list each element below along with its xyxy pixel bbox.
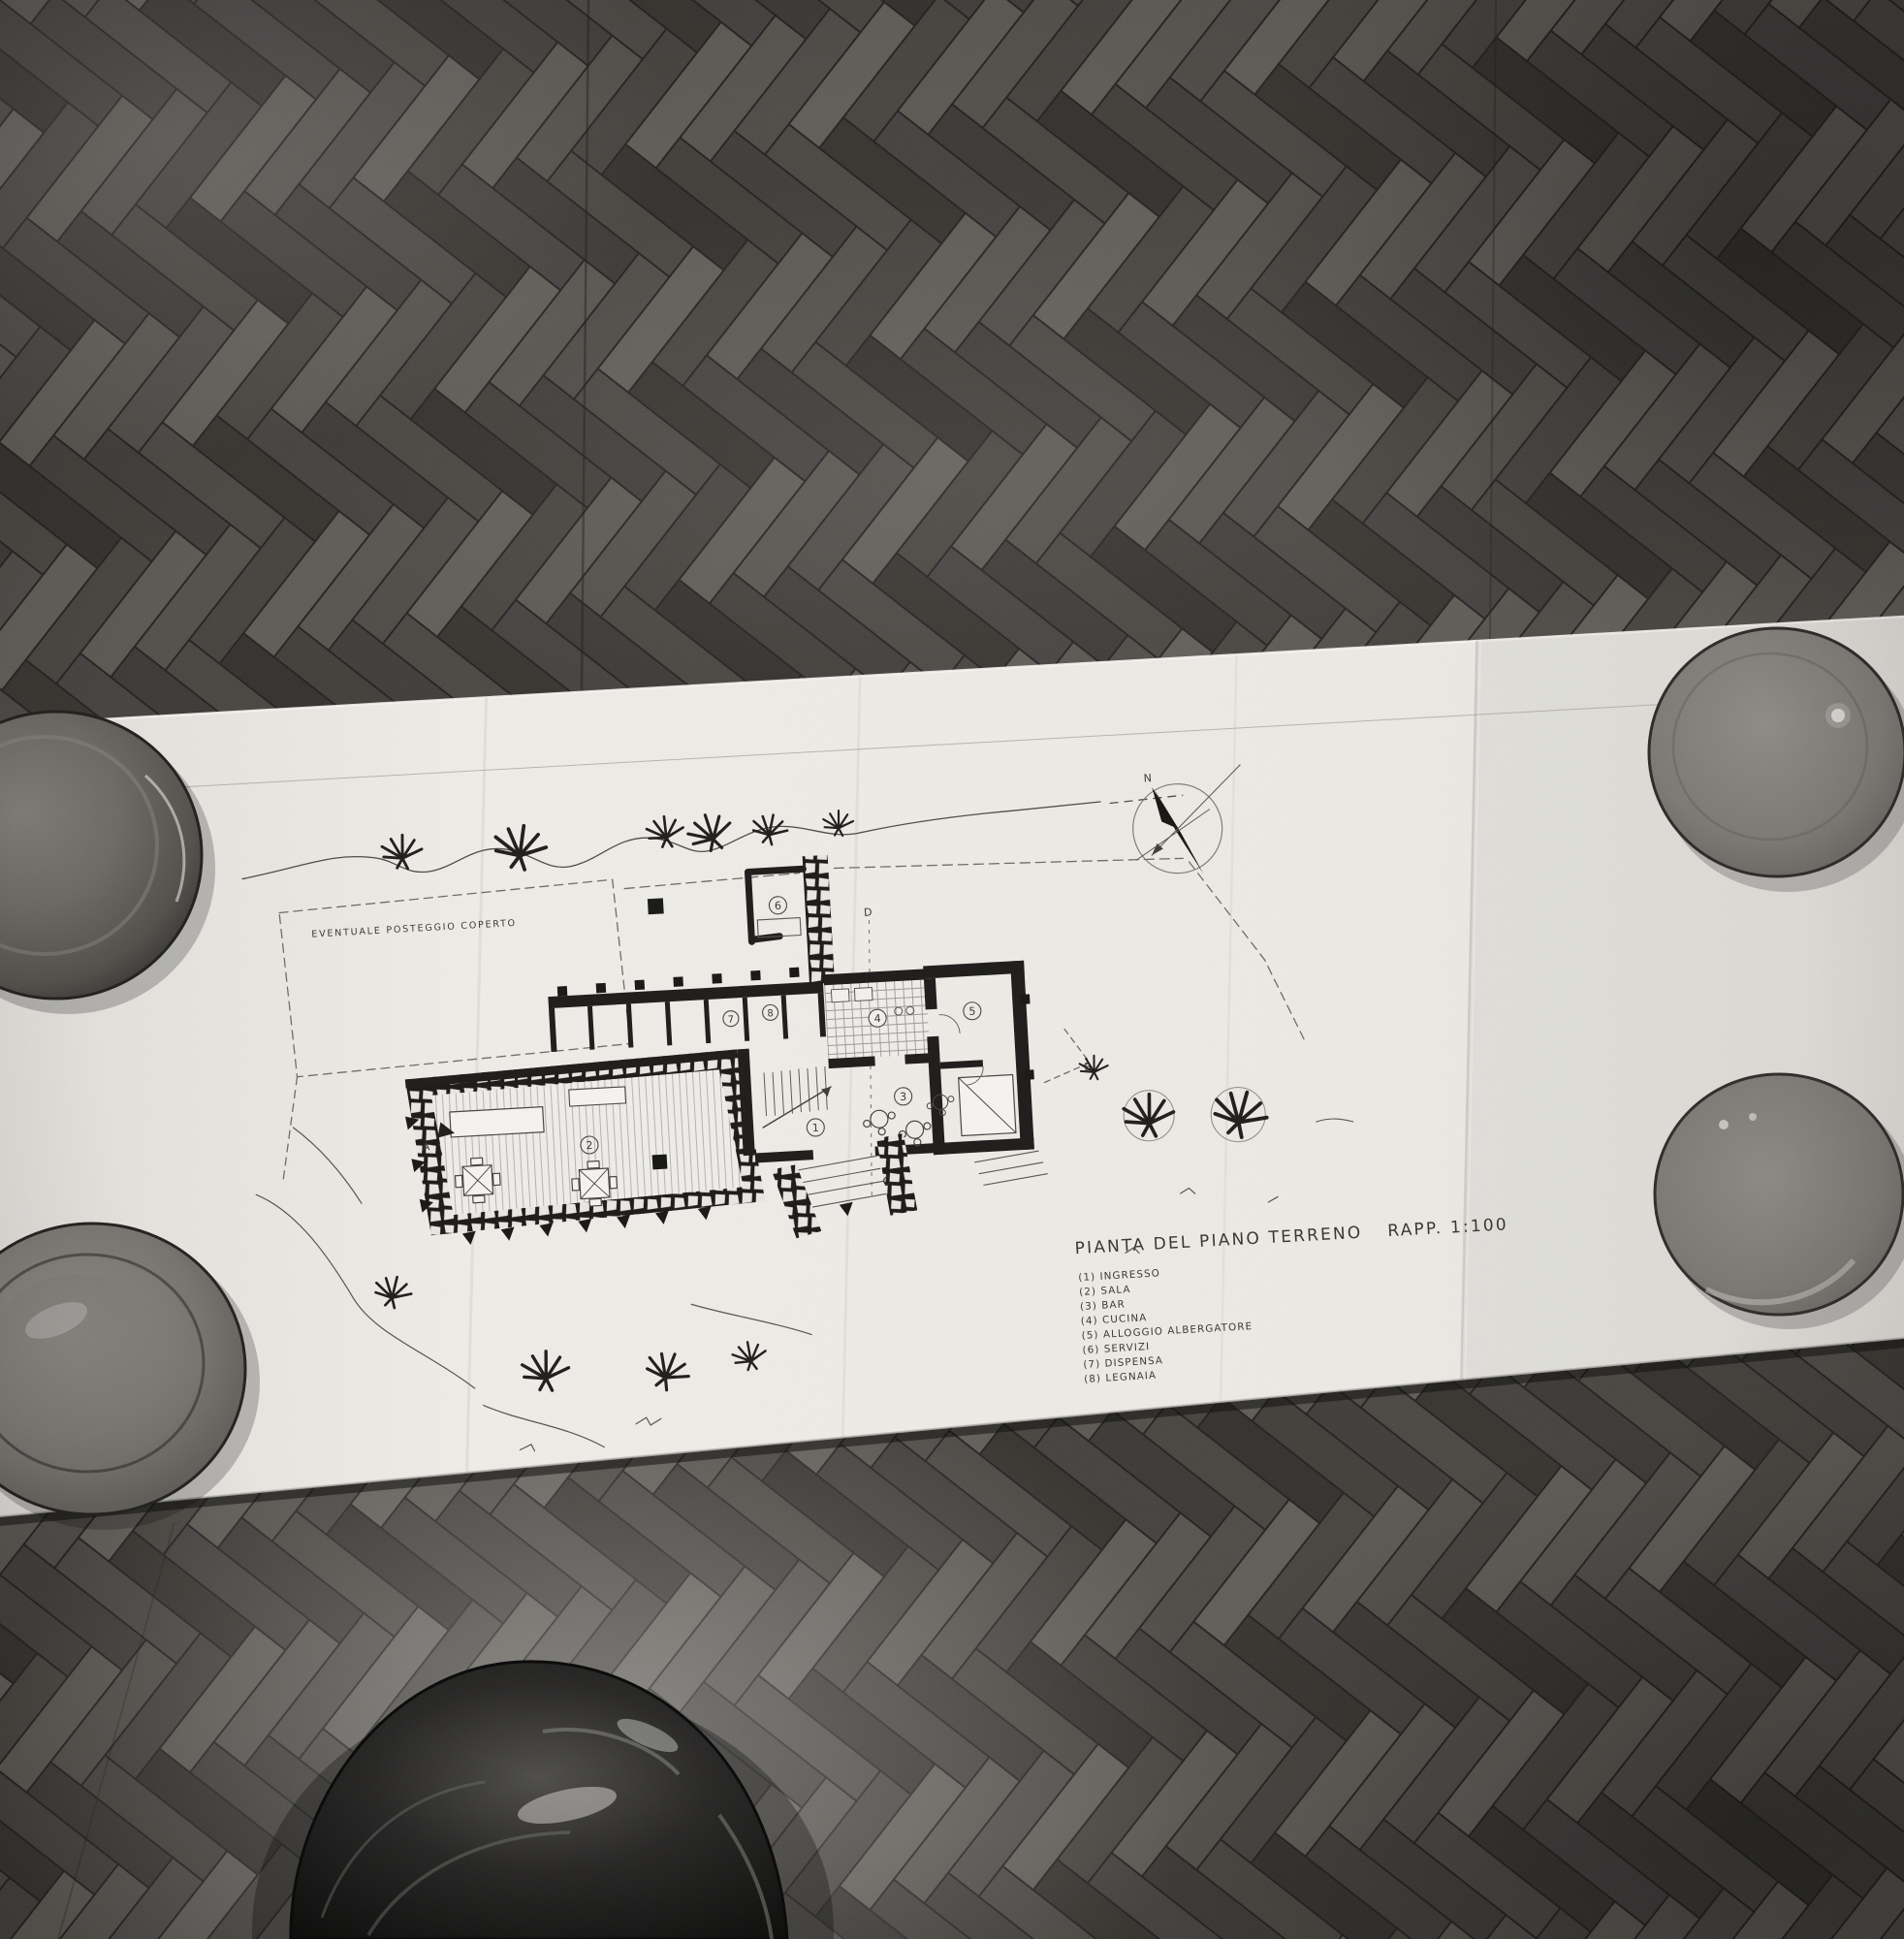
- photograph-floor-plan-on-parquet: EVENTUALE POSTEGGIO COPERTO: [0, 0, 1904, 1939]
- vignette: [0, 0, 1904, 1939]
- photo-canvas: EVENTUALE POSTEGGIO COPERTO: [0, 0, 1904, 1939]
